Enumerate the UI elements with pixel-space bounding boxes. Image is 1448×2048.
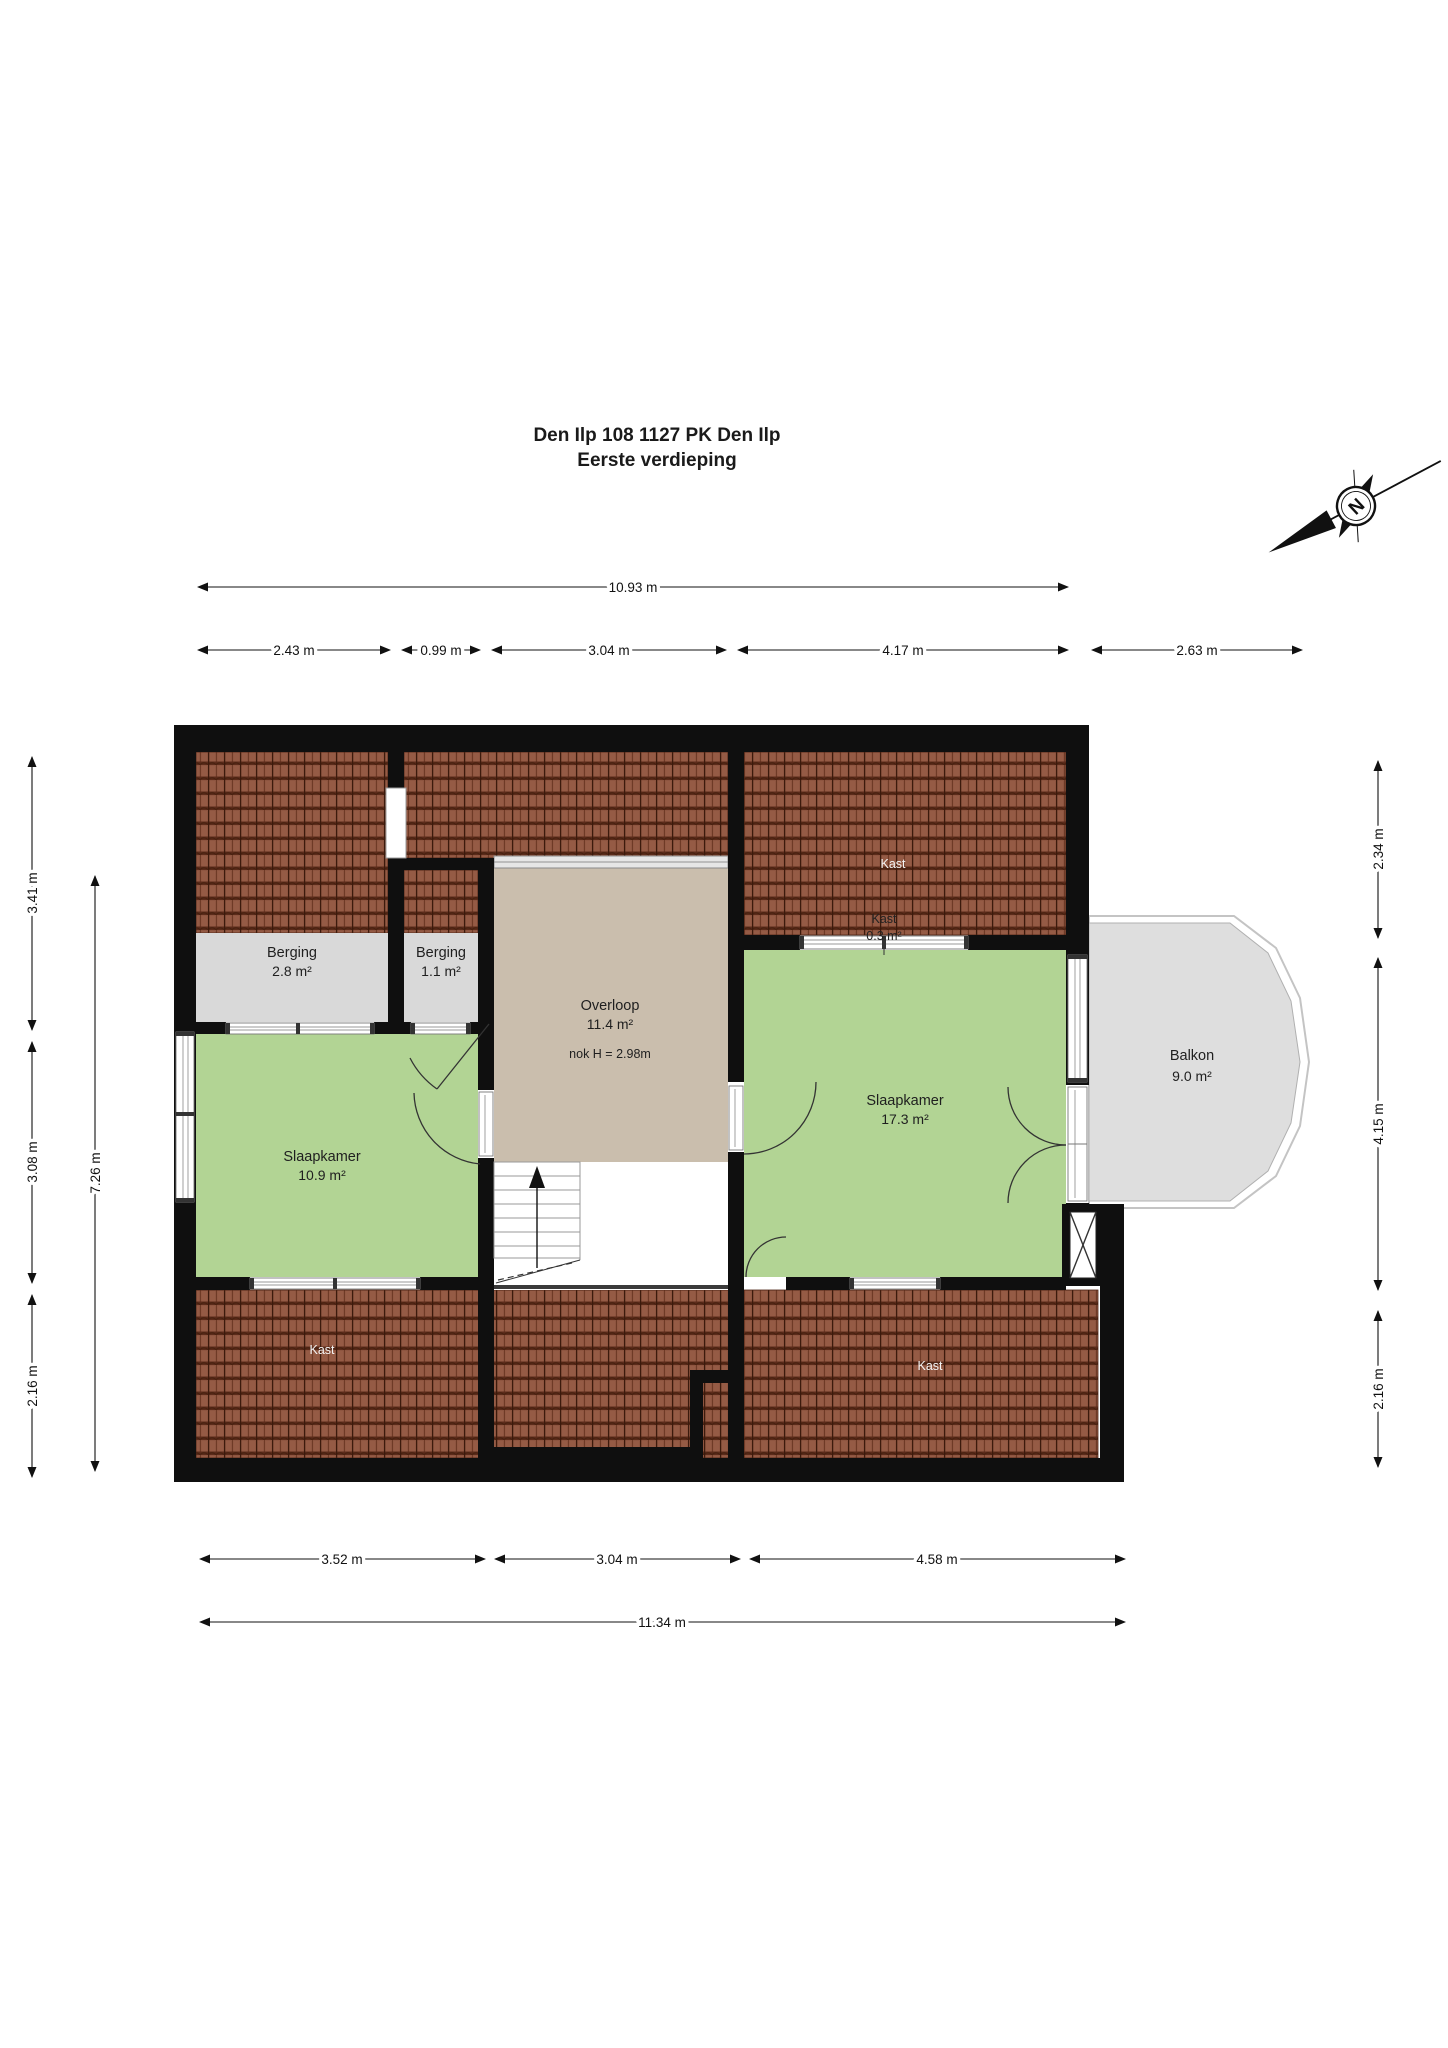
label-kast-attic-area: 0.3 m² <box>866 929 901 943</box>
wall-overloop-right-a <box>728 752 744 1082</box>
wall-slaapkamer-right-top-a <box>744 935 800 950</box>
wall-berging-bottom-b <box>374 1022 411 1034</box>
floorplan-canvas: Den Ilp 108 1127 PK Den Ilp Eerste verdi… <box>0 0 1448 2048</box>
label-slaapkamer-right-area: 17.3 m² <box>881 1111 929 1127</box>
window-slaapkamer-right-bottom <box>850 1278 940 1289</box>
dim-left-seg-2: 2.16 m <box>25 1365 40 1406</box>
roof-area-top-middle <box>404 752 728 858</box>
room-overloop-floor <box>494 868 728 1162</box>
door-leaf-overloop-left <box>479 1092 493 1156</box>
wall-top <box>174 725 1089 752</box>
wall-berging-bottom-a <box>196 1022 226 1034</box>
label-slaapkamer-left-area: 10.9 m² <box>298 1167 346 1183</box>
roof-strip-berging <box>404 870 478 933</box>
wall-overloop-left-a <box>478 858 494 1090</box>
label-berging-left-name: Berging <box>267 945 317 961</box>
label-overloop-ridge-height: nok H = 2.98m <box>569 1047 651 1061</box>
wall-inner-bottom <box>482 1447 694 1460</box>
dim-top-seg-3: 4.17 m <box>882 643 923 658</box>
roof-area-bottom <box>196 1290 1098 1458</box>
compass-north-arrow <box>1264 510 1336 561</box>
wall-berging-bottom-c <box>470 1022 478 1034</box>
label-berging-right-name: Berging <box>416 945 466 961</box>
label-overloop-name: Overloop <box>581 998 640 1014</box>
window-slaapkamer-left-bottom <box>250 1278 420 1289</box>
dim-right-seg-2: 2.16 m <box>1371 1368 1386 1409</box>
dim-right-seg-0: 2.34 m <box>1371 828 1386 869</box>
dim-top-total: 10.93 m <box>609 580 658 595</box>
wall-slaapkamer-right-top-b <box>968 935 1066 950</box>
floorplan-page: Den Ilp 108 1127 PK Den Ilp Eerste verdi… <box>0 0 1448 2048</box>
window-berging-left <box>226 1023 374 1034</box>
roof-area-top-right <box>744 752 1066 935</box>
dim-bottom-seg-2: 4.58 m <box>916 1552 957 1567</box>
door-leaf-overloop-right <box>729 1086 743 1150</box>
label-berging-left-area: 2.8 m² <box>272 963 312 979</box>
dim-right-seg-1: 4.15 m <box>1371 1103 1386 1144</box>
wall-bottom <box>174 1458 1124 1482</box>
stairwell-edge-line <box>494 1285 728 1289</box>
label-slaapkamer-right-name: Slaapkamer <box>866 1093 944 1109</box>
window-right-wall <box>1068 955 1087 1082</box>
wall-slaapkamer-left-bottom-a <box>196 1277 250 1290</box>
wall-slaapkamer-left-bottom-b <box>420 1277 478 1290</box>
title-line-1: Den Ilp 108 1127 PK Den Ilp <box>533 425 780 446</box>
wall-notch <box>386 788 406 858</box>
label-overloop-area: 11.4 m² <box>587 1016 634 1032</box>
dim-bottom-seg-0: 3.52 m <box>321 1552 362 1567</box>
wall-slaapkamer-right-bottom-b <box>940 1277 1066 1290</box>
wall-step-vertical <box>690 1370 703 1460</box>
wall-divider-upper-b <box>388 858 404 1034</box>
window-left-wall <box>176 1032 194 1202</box>
label-kast-top: Kast <box>880 857 906 871</box>
dim-left-seg-0: 3.41 m <box>25 872 40 913</box>
label-slaapkamer-left-name: Slaapkamer <box>283 1149 361 1165</box>
dim-top-seg-1: 0.99 m <box>420 643 461 658</box>
shaft-box <box>1062 1204 1104 1286</box>
wall-overloop-right-b <box>728 1152 744 1458</box>
dim-bottom-seg-1: 3.04 m <box>596 1552 637 1567</box>
page-title: Den Ilp 108 1127 PK Den Ilp Eerste verdi… <box>533 425 780 471</box>
dim-bottom-total: 11.34 m <box>638 1615 686 1630</box>
wall-overloop-left-b <box>478 1158 494 1458</box>
title-line-2: Eerste verdieping <box>577 450 736 471</box>
dim-left-total: 7.26 m <box>88 1152 103 1193</box>
roof-area-top-left <box>196 752 388 933</box>
overloop-sill <box>494 856 728 868</box>
label-balkon-name: Balkon <box>1170 1048 1214 1064</box>
balcony-door-leaves <box>1068 1087 1087 1201</box>
label-berging-right-area: 1.1 m² <box>421 963 461 979</box>
dim-left-seg-1: 3.08 m <box>25 1141 40 1182</box>
wall-slaapkamer-right-bottom-a <box>786 1277 850 1290</box>
dim-top-seg-0: 2.43 m <box>273 643 314 658</box>
label-balkon-area: 9.0 m² <box>1172 1068 1212 1084</box>
label-kast-bottom-right: Kast <box>917 1359 943 1373</box>
dim-top-seg-4: 2.63 m <box>1176 643 1217 658</box>
dim-top-seg-2: 3.04 m <box>588 643 629 658</box>
window-berging-right <box>411 1023 470 1034</box>
label-kast-attic-name: Kast <box>871 912 897 926</box>
label-kast-bottom-left: Kast <box>309 1343 335 1357</box>
wall-divider-upper-a <box>388 752 404 788</box>
compass-rose-icon: N <box>1253 432 1448 582</box>
